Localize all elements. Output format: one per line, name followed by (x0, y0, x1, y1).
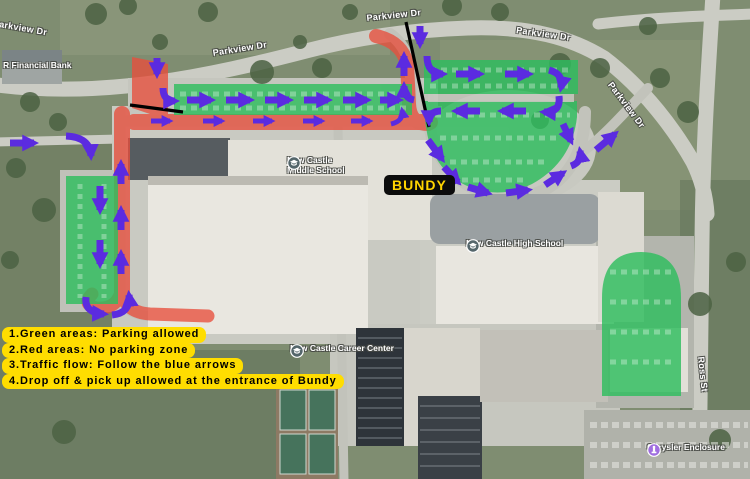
landmark-icon (647, 443, 661, 457)
campus-map: Parkview Dr Parkview Dr Parkview Dr Park… (0, 0, 750, 479)
legend: 1.Green areas: Parking allowed 2.Red are… (2, 327, 344, 389)
place-label-high-school: New Castle High School (466, 239, 563, 249)
legend-item-drop-off: 4.Drop off & pick up allowed at the entr… (2, 374, 344, 390)
bundy-entrance-badge: BUNDY (384, 175, 455, 195)
place-label-middle-school: New Castle Middle School (287, 156, 345, 175)
school-icon (466, 239, 480, 253)
green-zone-left-lot (66, 176, 118, 304)
legend-item-red-areas: 2.Red areas: No parking zone (2, 343, 195, 359)
place-label-chrysler-enclosure: Chrysler Enclosure (647, 443, 725, 453)
parking-aisle (428, 94, 574, 102)
place-label-financial-bank: R Financial Bank (3, 61, 72, 71)
map-graphics (0, 0, 750, 479)
legend-item-green-areas: 1.Green areas: Parking allowed (2, 327, 206, 343)
school-icon (287, 156, 301, 170)
legend-item-traffic-flow: 3.Traffic flow: Follow the blue arrows (2, 358, 243, 374)
green-zone-northeast-lot (424, 60, 578, 94)
